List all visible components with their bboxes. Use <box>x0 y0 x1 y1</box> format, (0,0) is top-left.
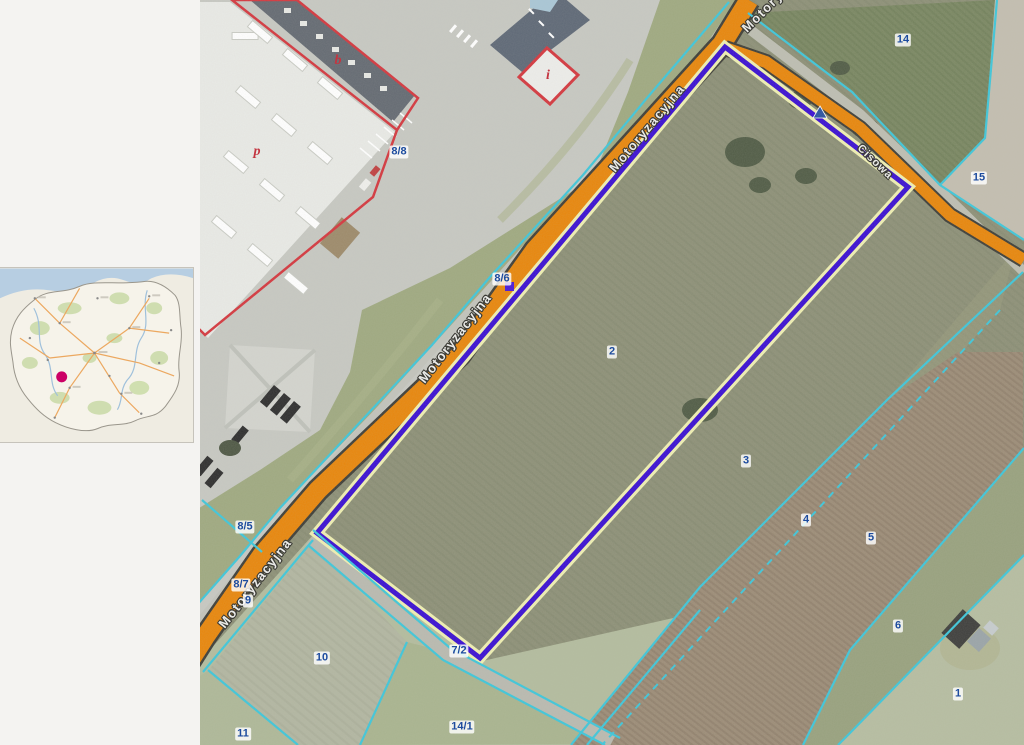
parcel-label-6: 6 <box>893 620 903 633</box>
parcel-label-15: 15 <box>971 172 987 185</box>
geoportal-screenshot: Motoryzacyjna Motoryzacyjna Motoryzacyjn… <box>0 0 1024 745</box>
parcel-label-8-8: 8/8 <box>389 146 408 159</box>
parcel-label-5: 5 <box>866 532 876 545</box>
parcel-label-3: 3 <box>741 455 751 468</box>
building-label-p: p <box>254 144 261 160</box>
poland-overview-map[interactable] <box>0 267 194 443</box>
parcel-label-2: 2 <box>607 346 617 359</box>
aerial-map-graphic <box>200 0 1024 745</box>
parcel-label-4: 4 <box>801 514 811 527</box>
parcel-label-8-7: 8/7 <box>231 579 250 592</box>
aerial-map-viewport[interactable]: Motoryzacyjna Motoryzacyjna Motoryzacyjn… <box>200 0 1024 745</box>
parcel-label-8-5: 8/5 <box>235 521 254 534</box>
parcel-label-9: 9 <box>243 595 253 608</box>
parcel-label-11: 11 <box>235 728 251 741</box>
parcel-label-10: 10 <box>314 652 330 665</box>
poland-inset-graphic <box>0 268 194 443</box>
building-label-i: i <box>546 68 550 84</box>
parcel-label-14: 14 <box>895 34 911 47</box>
parcel-label-7-2: 7/2 <box>449 645 468 658</box>
parcel-label-14-1: 14/1 <box>449 721 474 734</box>
sidebar <box>0 0 200 745</box>
photo-grain <box>200 0 1024 745</box>
building-label-b: b <box>335 53 342 69</box>
location-marker <box>56 371 67 382</box>
parcel-label-8-6: 8/6 <box>492 273 511 286</box>
parcel-label-1: 1 <box>953 688 963 701</box>
